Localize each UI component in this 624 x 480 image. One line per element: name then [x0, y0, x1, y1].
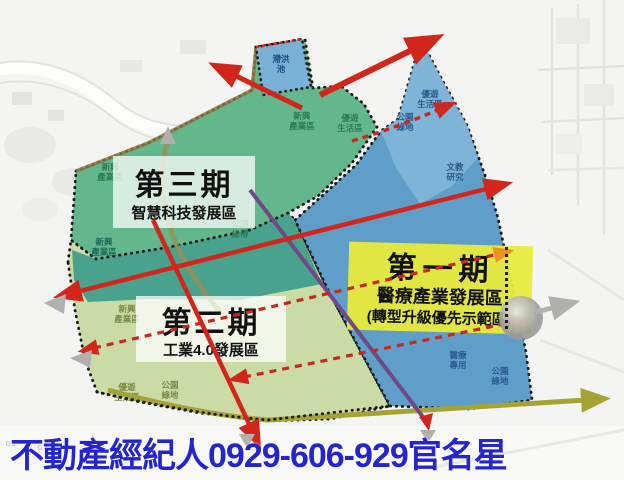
svg-text:池: 池 — [277, 64, 286, 74]
svg-text:優遊: 優遊 — [420, 89, 439, 99]
svg-text:專用: 專用 — [449, 360, 466, 370]
phase2-label-box: 第二期 工業4.0發展區 — [136, 296, 286, 362]
phase3-label-box: 第三期 智慧科技發展區 — [113, 156, 255, 228]
svg-text:公園: 公園 — [491, 366, 508, 376]
phase3-title: 第三期 — [135, 168, 234, 202]
svg-text:生活區: 生活區 — [337, 123, 363, 133]
svg-text:優遊: 優遊 — [117, 382, 136, 392]
svg-text:醫療: 醫療 — [449, 350, 467, 360]
broker-banner: 不動產經紀人0929-606-929官名星 — [10, 428, 624, 477]
phase1-boundary-dots — [505, 247, 508, 329]
svg-text:優遊: 優遊 — [340, 113, 359, 123]
svg-text:新興: 新興 — [293, 111, 311, 121]
phase3-subtitle: 智慧科技發展區 — [131, 204, 236, 222]
phase1-subtitle: 醫療產業發展區 — [377, 284, 504, 308]
map-canvas: 新興 產業區 公園 綠帶 新興 產業區 優遊 生活區 新興 產業區 新興 產業區… — [0, 0, 624, 480]
svg-text:綠帶: 綠帶 — [231, 229, 249, 239]
svg-text:文教: 文教 — [446, 162, 464, 172]
svg-text:新興: 新興 — [95, 237, 113, 247]
svg-text:產業區: 產業區 — [90, 247, 117, 257]
svg-text:產業區: 產業區 — [288, 121, 315, 131]
planning-map: 新興 產業區 公園 綠帶 新興 產業區 優遊 生活區 新興 產業區 新興 產業區… — [0, 0, 624, 480]
svg-text:新興: 新興 — [118, 304, 136, 314]
svg-text:研究: 研究 — [446, 172, 464, 182]
svg-text:公園: 公園 — [161, 380, 178, 390]
svg-text:綠地: 綠地 — [491, 376, 509, 386]
svg-text:滯洪: 滯洪 — [272, 54, 290, 64]
svg-text:綠地: 綠地 — [161, 390, 179, 400]
svg-text:公園: 公園 — [396, 112, 413, 122]
